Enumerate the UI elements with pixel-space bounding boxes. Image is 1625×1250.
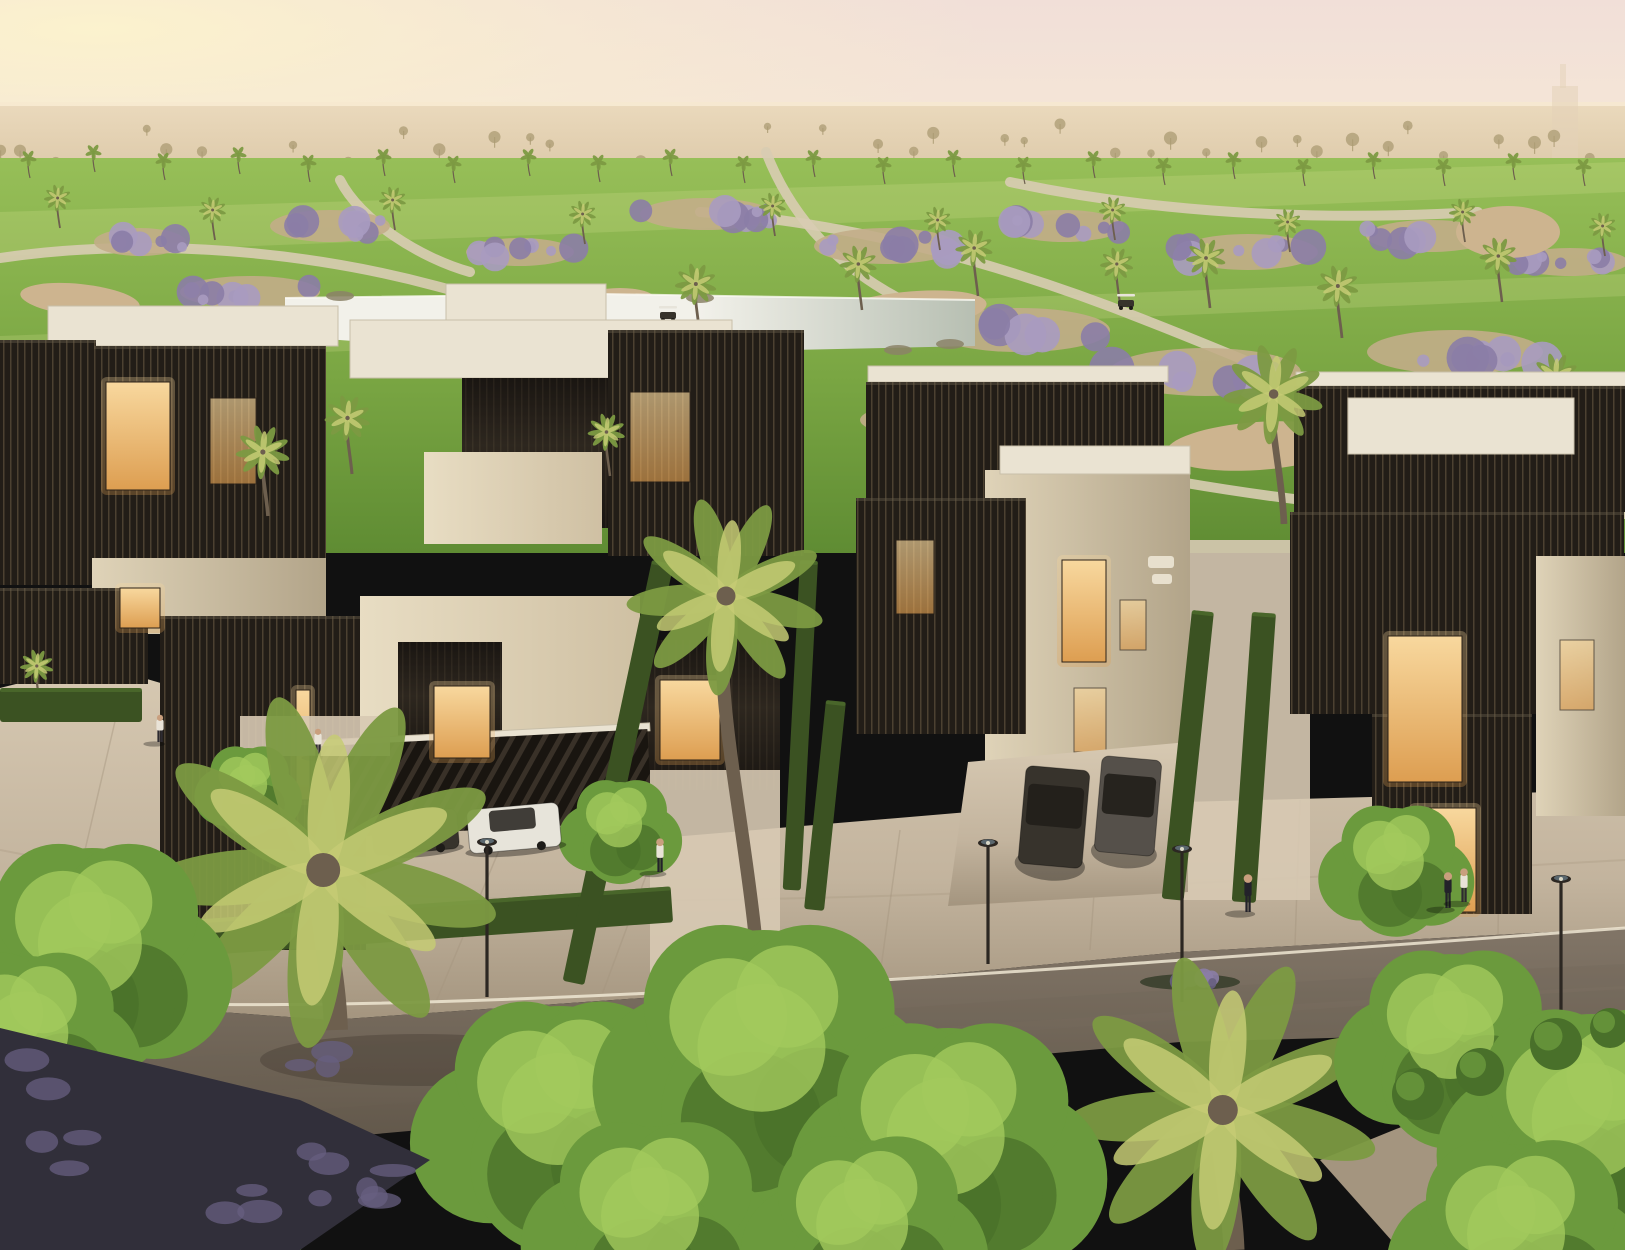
person-torso bbox=[156, 720, 163, 731]
person-head bbox=[315, 729, 321, 735]
distant-palm-crown bbox=[873, 139, 883, 149]
palm-crown-center bbox=[1208, 1095, 1238, 1125]
palm-crown-center bbox=[35, 664, 38, 667]
distant-palm-crown bbox=[1021, 137, 1028, 144]
person-torso bbox=[314, 734, 321, 745]
lavender-tuft bbox=[889, 236, 916, 263]
cart-body bbox=[660, 312, 676, 319]
villa-white-volume bbox=[868, 366, 1168, 382]
tree-foliage-light bbox=[1366, 832, 1424, 890]
distant-palm-crown bbox=[1548, 130, 1560, 142]
villa-community-rendering bbox=[0, 0, 1625, 1250]
lit-window bbox=[1560, 640, 1594, 710]
lamp-light bbox=[1559, 877, 1563, 881]
villa-stone-volume bbox=[424, 452, 602, 544]
car-cabin bbox=[489, 807, 537, 832]
cart-body bbox=[1118, 300, 1134, 307]
lavender-bed-tuft bbox=[4, 1048, 49, 1072]
distant-palm-crown bbox=[1256, 136, 1268, 148]
lavender-tuft bbox=[177, 242, 187, 252]
person-torso bbox=[1244, 881, 1251, 896]
lavender-tuft bbox=[375, 215, 386, 226]
villa-slat-volume bbox=[0, 340, 96, 585]
distant-palm-crown bbox=[1403, 121, 1413, 131]
distant-tower-spire bbox=[1560, 64, 1566, 88]
villa-slat-edge bbox=[160, 616, 366, 619]
palm-crown-center bbox=[391, 199, 394, 202]
distant-palm-crown bbox=[1346, 133, 1359, 146]
lavender-bed-tuft bbox=[309, 1152, 350, 1175]
hedge-wall bbox=[0, 688, 142, 722]
lavender-bed-tuft bbox=[26, 1077, 71, 1100]
palm-crown-center bbox=[1204, 256, 1208, 260]
lavender-tuft bbox=[1012, 215, 1023, 226]
palm-crown-center bbox=[1269, 389, 1279, 399]
distant-palm-crown bbox=[1164, 131, 1177, 144]
distant-palm-crown bbox=[819, 124, 827, 132]
lamp-light bbox=[485, 840, 489, 844]
lit-window bbox=[120, 588, 160, 628]
lavender-tuft bbox=[1404, 221, 1436, 253]
palm-crown-center bbox=[936, 219, 939, 222]
person-legs bbox=[660, 856, 662, 872]
distant-palm-crown bbox=[1528, 136, 1541, 149]
person-legs bbox=[1245, 894, 1247, 912]
lit-window bbox=[1388, 636, 1462, 782]
villa-white-volume bbox=[446, 284, 606, 324]
lavender-bed-tuft bbox=[236, 1184, 267, 1197]
distant-palm-crown bbox=[488, 131, 500, 143]
distant-palm-crown bbox=[927, 127, 939, 139]
lavender-bed-tuft bbox=[311, 1041, 353, 1063]
lavender-tuft bbox=[709, 195, 741, 227]
lavender-bed-tuft bbox=[308, 1190, 331, 1206]
palm-crown-center bbox=[857, 262, 861, 266]
distant-palm-crown bbox=[1110, 148, 1120, 158]
lavender-tuft bbox=[1081, 322, 1110, 351]
palm-crown-center bbox=[1336, 284, 1340, 288]
lit-window bbox=[660, 680, 720, 760]
palm-crown-center bbox=[1111, 209, 1114, 212]
lavender-tuft bbox=[111, 231, 133, 253]
parked-car bbox=[1090, 755, 1165, 871]
lavender-tuft bbox=[1268, 235, 1285, 252]
lavender-bed-tuft bbox=[361, 1186, 388, 1208]
lit-window bbox=[106, 382, 170, 490]
lavender-bed-tuft bbox=[26, 1131, 59, 1153]
lamp-light bbox=[986, 841, 990, 845]
distant-palm-crown bbox=[1494, 134, 1504, 144]
roadside-bush-light bbox=[1534, 1022, 1563, 1051]
lavender-bed-tuft bbox=[237, 1200, 282, 1223]
palm-crown-center bbox=[1286, 221, 1289, 224]
lavender-tuft bbox=[1005, 314, 1047, 356]
person-head bbox=[1244, 874, 1253, 883]
distant-palm-crown bbox=[197, 146, 207, 156]
palm-crown-center bbox=[581, 213, 584, 216]
palm-crown-center bbox=[260, 449, 265, 454]
villa-slat-edge bbox=[866, 382, 1164, 385]
lit-window bbox=[1120, 600, 1146, 650]
lavender-tuft bbox=[338, 206, 370, 238]
distant-palm-crown bbox=[399, 126, 408, 135]
palm-crown-center bbox=[717, 587, 736, 606]
rendering-stage bbox=[0, 0, 1625, 1250]
lit-window bbox=[434, 686, 490, 758]
villa-slat-edge bbox=[856, 498, 1026, 501]
distant-palm-crown bbox=[545, 139, 554, 148]
pond-rock bbox=[884, 345, 912, 355]
person-legs bbox=[1248, 894, 1250, 912]
palm-crown-center bbox=[1115, 262, 1118, 265]
distant-palm-crown bbox=[1293, 135, 1302, 144]
roadside-bush-light bbox=[1396, 1072, 1425, 1101]
hedge-body bbox=[0, 688, 142, 722]
tree-foliage-light bbox=[697, 984, 825, 1112]
lavender-tuft bbox=[1555, 258, 1566, 269]
person-shadow bbox=[143, 741, 165, 746]
lavender-tuft bbox=[1107, 221, 1130, 244]
lavender-tuft bbox=[1587, 249, 1602, 264]
person-legs bbox=[1461, 886, 1463, 902]
villa-white-volume bbox=[1348, 398, 1574, 454]
lavender-tuft bbox=[979, 308, 1010, 339]
roadside-bush-light bbox=[1460, 1052, 1486, 1078]
distant-palm-crown bbox=[433, 143, 445, 155]
car-cabin bbox=[1025, 783, 1084, 829]
lavender-tuft bbox=[1359, 221, 1375, 237]
parked-car bbox=[1013, 765, 1093, 883]
person-torso bbox=[1444, 879, 1451, 893]
lavender-tuft bbox=[481, 242, 510, 271]
cart-canopy bbox=[659, 306, 677, 309]
person-torso bbox=[1460, 874, 1467, 887]
lavender-tuft bbox=[1056, 213, 1080, 237]
lavender-tuft bbox=[509, 237, 531, 259]
villa-white-volume bbox=[1000, 446, 1190, 474]
distant-palm-crown bbox=[1311, 145, 1323, 157]
person-legs bbox=[157, 729, 159, 742]
palm-crown-center bbox=[211, 209, 214, 212]
lamp-pole bbox=[986, 846, 989, 964]
hedge-top bbox=[0, 688, 142, 692]
villa-slat-edge bbox=[1290, 512, 1624, 515]
villa-slat-edge bbox=[1294, 386, 1625, 389]
terrace-furniture bbox=[1148, 556, 1174, 568]
palm-crown-center bbox=[306, 853, 340, 887]
lavender-bed-tuft bbox=[49, 1160, 89, 1176]
pond-rock bbox=[326, 291, 354, 301]
cart-wheel bbox=[1129, 306, 1133, 310]
villa-slat-volume bbox=[856, 498, 1026, 734]
lavender-tuft bbox=[1466, 345, 1497, 376]
tree-foliage-light bbox=[596, 801, 642, 847]
distant-palm-crown bbox=[526, 133, 534, 141]
cart-wheel bbox=[1119, 306, 1123, 310]
lamp-light bbox=[1180, 847, 1184, 851]
lit-window bbox=[896, 540, 934, 614]
distant-palm-crown bbox=[1147, 149, 1155, 157]
lavender-bed-tuft bbox=[370, 1164, 416, 1177]
lavender-tuft bbox=[298, 275, 321, 298]
lavender-tuft bbox=[1233, 245, 1244, 256]
distant-palm-crown bbox=[909, 147, 918, 156]
roadside-bush-light bbox=[1593, 1011, 1615, 1033]
person-legs bbox=[1464, 886, 1466, 902]
lavender-tuft bbox=[546, 246, 556, 256]
car-cabin bbox=[1101, 773, 1156, 818]
palm-crown-center bbox=[56, 197, 59, 200]
distant-palm-crown bbox=[1001, 134, 1009, 142]
pond-rock bbox=[936, 339, 964, 349]
palm-crown-center bbox=[1601, 225, 1604, 228]
villa-slat-edge bbox=[0, 340, 96, 343]
lavender-bed-tuft bbox=[285, 1059, 315, 1071]
palm-crown-center bbox=[694, 282, 698, 286]
lavender-tuft bbox=[198, 294, 209, 305]
distant-palm-crown bbox=[1055, 119, 1066, 130]
person-head bbox=[157, 715, 163, 721]
lavender-tuft bbox=[1290, 229, 1326, 265]
lit-window bbox=[1062, 560, 1106, 662]
distant-palm-crown bbox=[764, 123, 771, 130]
person-head bbox=[1460, 868, 1468, 876]
terrace-furniture bbox=[1152, 574, 1172, 584]
villa-slat-edge bbox=[608, 330, 804, 333]
villa-white-volume bbox=[1296, 372, 1625, 386]
lavender-tuft bbox=[918, 231, 931, 244]
lavender-tuft bbox=[629, 199, 652, 222]
distant-palm-crown bbox=[1202, 148, 1210, 156]
distant-palm-crown bbox=[1383, 141, 1394, 152]
lavender-tuft bbox=[1172, 371, 1193, 392]
cart-canopy bbox=[1117, 294, 1135, 297]
lavender-tuft bbox=[827, 235, 838, 246]
palm-crown-center bbox=[771, 205, 774, 208]
distant-palm-crown bbox=[289, 141, 297, 149]
lamp-pole bbox=[1559, 882, 1562, 1027]
lavender-tuft bbox=[1417, 354, 1429, 366]
lavender-tuft bbox=[284, 213, 308, 237]
palm-crown-center bbox=[1461, 211, 1464, 214]
lavender-tuft bbox=[1208, 978, 1216, 986]
palm-crown-center bbox=[1497, 254, 1501, 258]
person-legs bbox=[160, 729, 162, 742]
lavender-tuft bbox=[1537, 252, 1547, 262]
palm-crown-center bbox=[972, 246, 976, 250]
person-head bbox=[656, 838, 664, 846]
palm-crown-center bbox=[605, 430, 609, 434]
villa-slat-edge bbox=[94, 346, 326, 349]
palm-crown-center bbox=[345, 416, 349, 420]
lavender-tuft bbox=[1166, 234, 1193, 261]
person-head bbox=[1444, 872, 1452, 880]
lit-window bbox=[630, 392, 690, 482]
person-torso bbox=[656, 844, 663, 857]
person-legs bbox=[657, 856, 659, 872]
lit-window bbox=[1074, 688, 1106, 752]
lavender-bed-tuft bbox=[63, 1130, 101, 1146]
distant-palm-crown bbox=[143, 125, 151, 133]
